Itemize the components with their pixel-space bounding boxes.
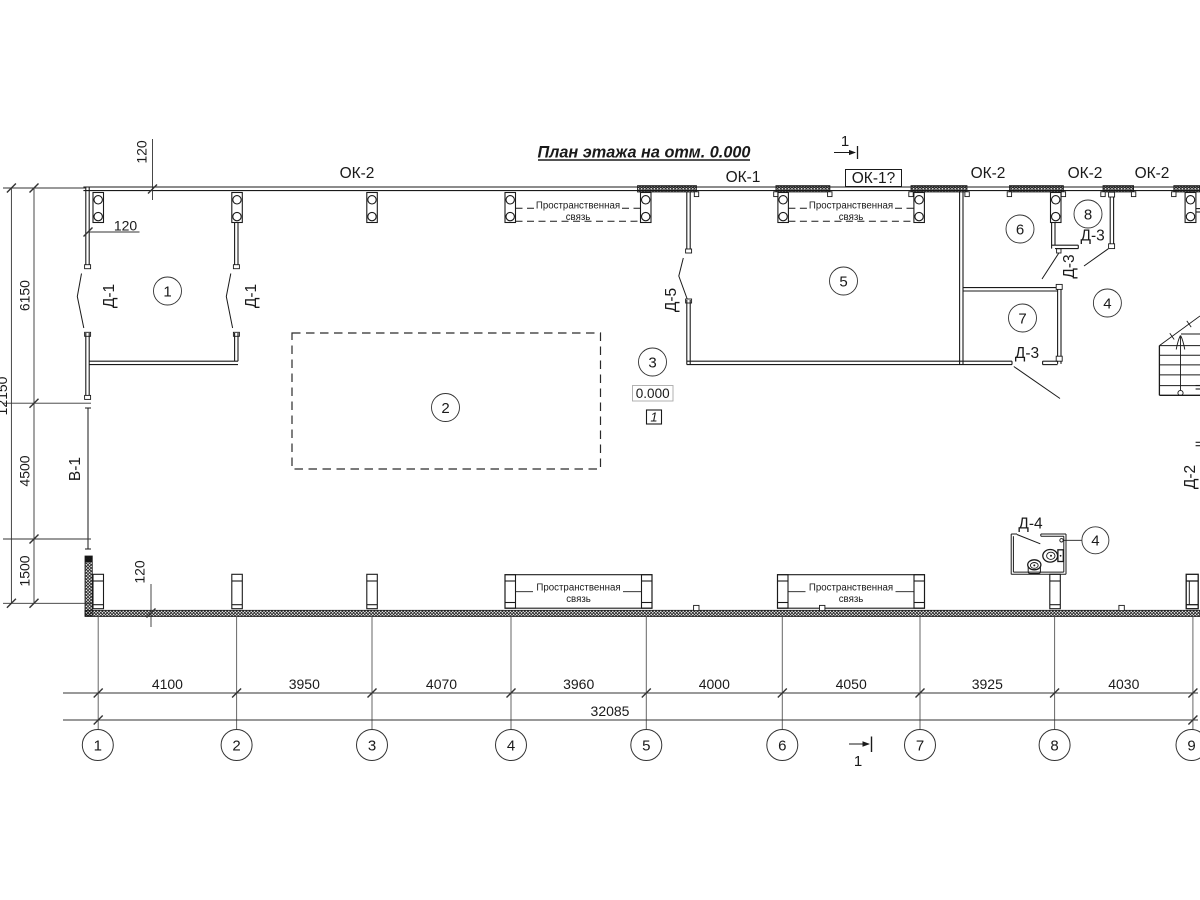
svg-text:4100: 4100	[152, 676, 183, 692]
svg-text:Д-3: Д-3	[1015, 345, 1039, 362]
svg-text:Пространственная: Пространственная	[809, 583, 893, 594]
svg-text:4: 4	[507, 738, 515, 755]
svg-text:Д-2: Д-2	[1182, 465, 1199, 489]
svg-text:3: 3	[648, 354, 656, 371]
svg-text:8: 8	[1084, 206, 1092, 223]
svg-text:Пространственная: Пространственная	[809, 201, 893, 212]
svg-text:2: 2	[441, 400, 449, 417]
svg-text:В-1: В-1	[67, 457, 84, 481]
svg-text:120: 120	[132, 560, 148, 584]
svg-text:6150: 6150	[17, 280, 33, 311]
svg-text:ОК-2: ОК-2	[971, 165, 1006, 182]
svg-text:1: 1	[650, 409, 657, 424]
svg-text:связь: связь	[566, 212, 591, 223]
svg-text:Пространственная: Пространственная	[536, 201, 620, 212]
svg-text:связь: связь	[566, 594, 591, 605]
svg-text:6: 6	[1016, 221, 1024, 238]
svg-text:ОК-1: ОК-1	[726, 169, 761, 186]
svg-text:1: 1	[163, 283, 171, 300]
svg-text:ОК-1?: ОК-1?	[852, 170, 896, 187]
svg-text:9: 9	[1187, 738, 1195, 755]
svg-text:4000: 4000	[699, 676, 730, 692]
svg-text:4500: 4500	[17, 455, 33, 486]
svg-text:Д-1: Д-1	[101, 284, 118, 308]
svg-text:4: 4	[1091, 533, 1099, 550]
svg-text:связь: связь	[839, 594, 864, 605]
svg-text:3960: 3960	[563, 676, 594, 692]
svg-text:Д-1: Д-1	[243, 284, 260, 308]
svg-text:0.000: 0.000	[636, 386, 670, 401]
svg-text:4070: 4070	[426, 676, 457, 692]
svg-text:Д-4: Д-4	[1018, 516, 1043, 533]
svg-text:3: 3	[368, 738, 376, 755]
svg-text:3925: 3925	[972, 676, 1003, 692]
svg-text:Пространственная: Пространственная	[536, 583, 620, 594]
svg-text:ОК-2: ОК-2	[340, 165, 375, 182]
svg-text:Д-5: Д-5	[663, 288, 680, 312]
svg-text:5: 5	[839, 273, 847, 290]
svg-text:Д-3: Д-3	[1080, 228, 1104, 245]
svg-text:1: 1	[841, 133, 849, 150]
svg-text:5: 5	[642, 738, 650, 755]
svg-text:2: 2	[232, 738, 240, 755]
svg-text:7: 7	[916, 738, 924, 755]
svg-text:4030: 4030	[1108, 676, 1139, 692]
svg-text:12150: 12150	[0, 376, 10, 415]
svg-text:32085: 32085	[591, 703, 630, 719]
svg-text:3950: 3950	[289, 676, 320, 692]
svg-text:1: 1	[854, 753, 862, 770]
svg-text:1: 1	[94, 738, 102, 755]
svg-text:8: 8	[1050, 738, 1058, 755]
svg-text:7: 7	[1018, 310, 1026, 327]
svg-text:Д-3: Д-3	[1061, 254, 1078, 278]
svg-text:4050: 4050	[836, 676, 867, 692]
svg-text:ОК-2: ОК-2	[1135, 165, 1170, 182]
svg-text:6: 6	[778, 738, 786, 755]
svg-text:4: 4	[1103, 295, 1111, 312]
svg-text:связь: связь	[839, 212, 864, 223]
svg-text:120: 120	[114, 218, 138, 234]
svg-text:120: 120	[134, 140, 150, 164]
svg-text:ОК-2: ОК-2	[1068, 165, 1103, 182]
svg-text:План этажа на отм. 0.000: План этажа на отм. 0.000	[538, 144, 751, 162]
svg-text:1500: 1500	[17, 555, 33, 586]
